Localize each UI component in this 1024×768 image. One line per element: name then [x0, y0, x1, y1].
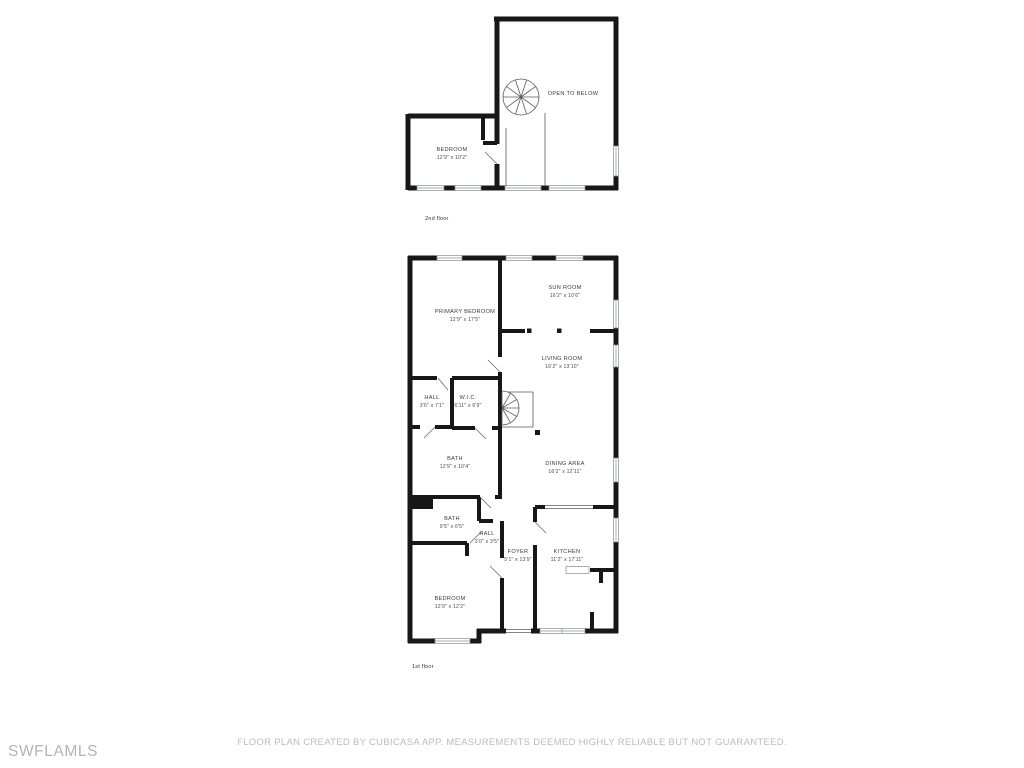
disclaimer-text: FLOOR PLAN CREATED BY CUBICASA APP. MEAS…: [0, 737, 1024, 748]
kitchen-counter: [566, 567, 589, 574]
room-dims-wic: 6'11" x 6'9": [454, 403, 481, 409]
room-label-hall2: HALL: [479, 531, 494, 537]
room-dims-foyer: 5'1" x 13'9": [504, 557, 532, 563]
room-label-sun-room: SUN ROOM: [548, 285, 581, 291]
room-dims-hall2: 3'0" x 3'5": [475, 539, 499, 545]
floor-label-2nd: 2nd floor: [425, 216, 449, 222]
bedroom-top-wall-1f: [410, 543, 467, 556]
room-label-bath: BATH: [447, 456, 463, 462]
room-dims-dining-area: 16'2" x 12'11": [548, 469, 581, 475]
door-leaf: [490, 566, 502, 578]
door-leaf: [475, 428, 486, 439]
room-label-dining-area: DINING AREA: [545, 461, 584, 467]
room-label-bedroom-2f: BEDROOM: [436, 147, 467, 153]
door-leaf: [424, 427, 435, 438]
room-dims-living-room: 16'2" x 13'10": [545, 364, 579, 370]
room-label-bedroom-1f: BEDROOM: [434, 596, 465, 602]
first-floor-plan: PRIMARY BEDROOM 12'9" x 17'5" SUN ROOM 1…: [408, 256, 619, 671]
room-label-hall: HALL: [424, 395, 439, 401]
stairwell-outline-2f: [506, 113, 545, 186]
room-label-living-room: LIVING ROOM: [542, 356, 583, 362]
opening-post: [527, 329, 532, 334]
watermark-swflamls: SWFLAMLS: [8, 743, 98, 761]
floor-label-1st: 1st floor: [412, 664, 434, 670]
room-dims-bedroom-2f: 12'9" x 10'2": [437, 155, 468, 161]
spiral-staircase-icon: [503, 79, 539, 115]
room-dims-bath: 12'9" x 10'4": [440, 464, 471, 470]
room-dims-primary-bedroom: 12'9" x 17'5": [450, 317, 481, 323]
room-label-wic: W.I.C.: [459, 395, 476, 401]
room-dims-kitchen: 11'2" x 17'11": [551, 557, 584, 563]
chase-block: [412, 498, 433, 509]
room-label-bath2: BATH: [444, 516, 460, 522]
room-dims-sun-room: 16'2" x 10'6": [550, 293, 581, 299]
door-leaf: [438, 378, 448, 390]
room-dims-bath2: 9'5" x 6'5": [440, 524, 464, 530]
door-leaf-2f: [485, 152, 497, 164]
room-label-foyer: FOYER: [508, 549, 529, 555]
opening-post: [557, 329, 562, 334]
floor-plan-page: BEDROOM 12'9" x 10'2" OPEN TO BELOW 2nd …: [0, 0, 1024, 768]
door-leaf: [480, 497, 491, 508]
bath2-right-wall: [479, 497, 493, 521]
first-floor-thin-lines: [502, 392, 593, 633]
first-floor-labels: PRIMARY BEDROOM 12'9" x 17'5" SUN ROOM 1…: [420, 285, 585, 610]
entry-door-line: [506, 630, 531, 633]
floor-plan-drawing: BEDROOM 12'9" x 10'2" OPEN TO BELOW 2nd …: [0, 0, 1024, 768]
second-floor-plan: BEDROOM 12'9" x 10'2" OPEN TO BELOW 2nd …: [408, 17, 619, 222]
spiral-staircase-icon-1f: [502, 391, 519, 425]
door-leaf: [535, 522, 546, 533]
room-dims-bedroom-1f: 12'9" x 12'2": [435, 604, 466, 610]
door-leaf: [488, 360, 500, 372]
room-label-open-to-below: OPEN TO BELOW: [548, 91, 599, 97]
room-label-kitchen: KITCHEN: [554, 549, 581, 555]
room-label-primary-bedroom: PRIMARY BEDROOM: [435, 309, 495, 315]
cased-opening-dining-kitchen: [545, 506, 593, 509]
column-post: [535, 430, 540, 435]
room-dims-hall: 3'6" x 7'1": [420, 403, 444, 409]
kitchen-stub-walls: [590, 570, 616, 631]
